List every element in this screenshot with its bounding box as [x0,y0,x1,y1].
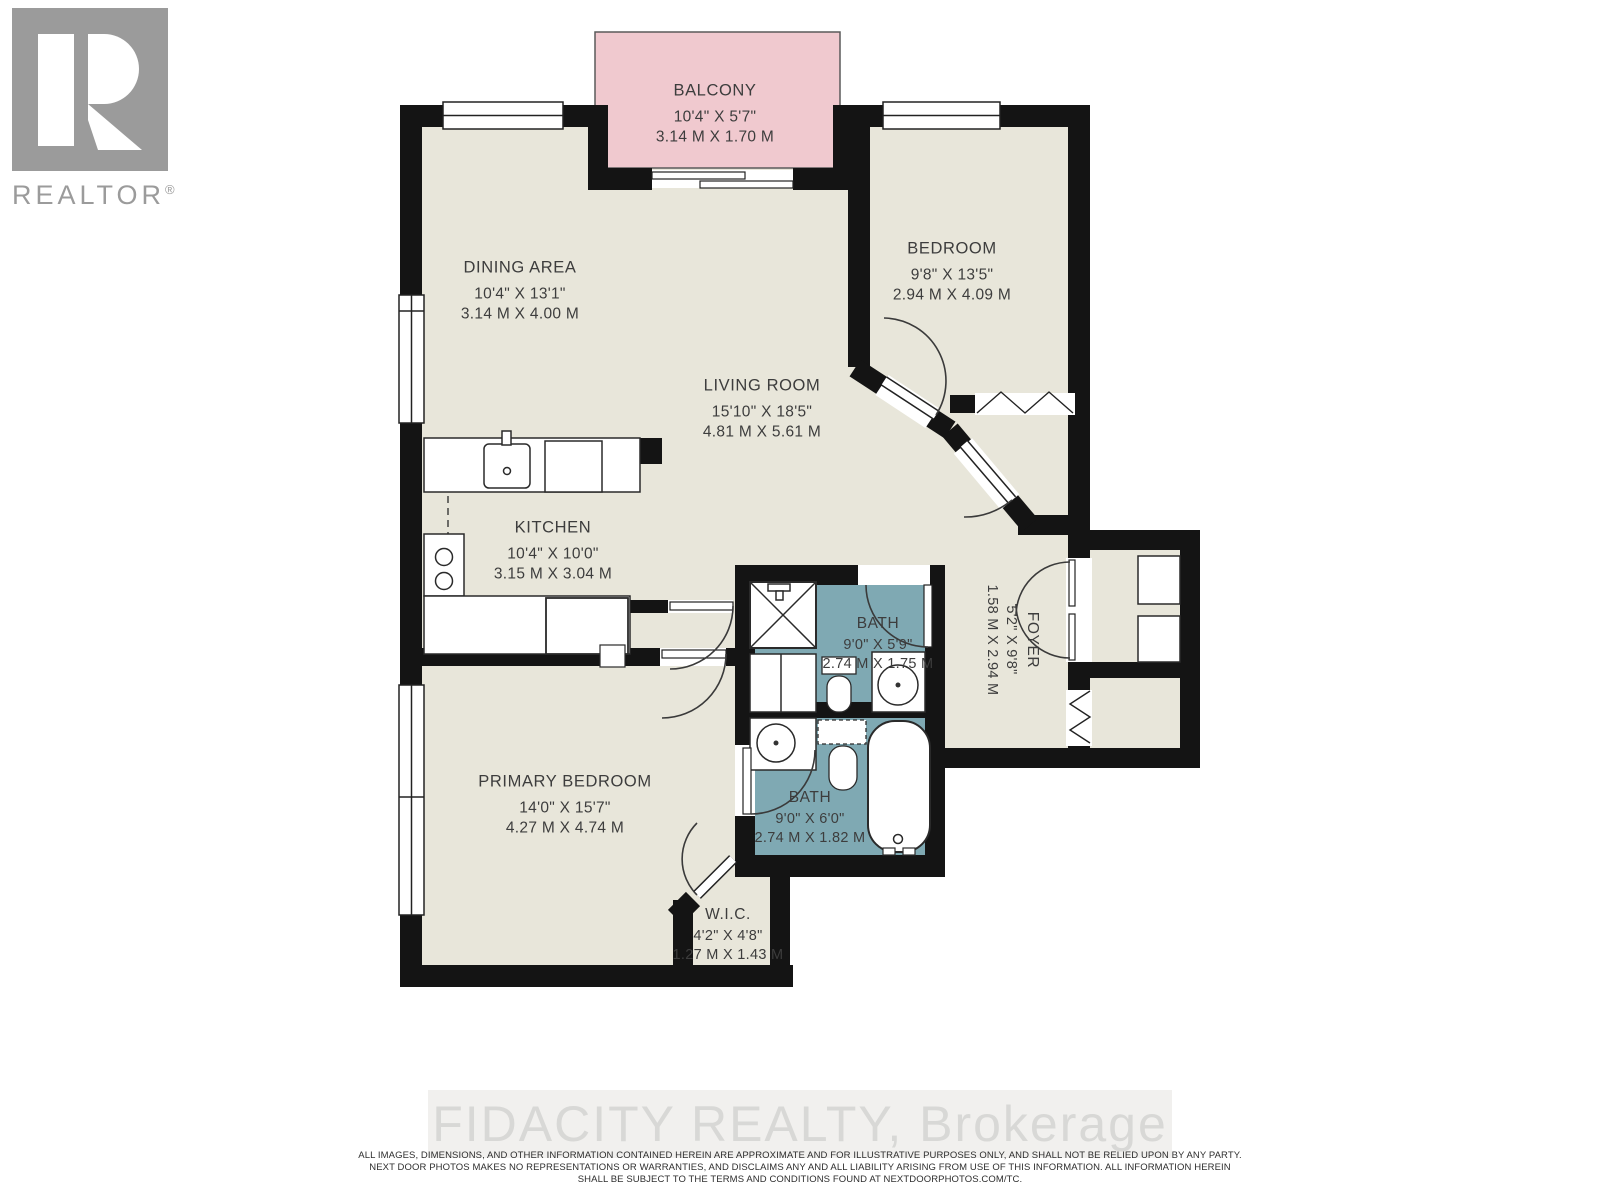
disclaimer-line-1: ALL IMAGES, DIMENSIONS, AND OTHER INFORM… [0,1150,1600,1162]
vanity-icon [750,654,816,712]
realtor-wordmark: REALTOR® [12,180,175,211]
shower-icon [750,582,816,648]
room-label-bedroom: BEDROOM 9'8" X 13'5" 2.94 M X 4.09 M [893,240,1011,307]
room-label-living: LIVING ROOM 15'10" X 18'5" 4.81 M X 5.61… [703,377,821,444]
window-icon-primary-left [399,685,424,915]
room-label-primary-bedroom: PRIMARY BEDROOM 14'0" X 15'7" 4.27 M X 4… [478,773,651,840]
disclaimer-line-3: SHALL BE SUBJECT TO THE TERMS AND CONDIT… [0,1174,1600,1186]
burner-icon [436,549,453,566]
counter-stub [600,645,625,667]
kitchen-sink-icon [484,444,530,488]
sink-icon [750,718,816,770]
cooktop-icon [545,441,602,492]
room-label-bath-ensuite: BATH 9'0" X 6'0" 2.74 M X 1.82 M [755,789,866,847]
shelf-icon [1138,616,1180,662]
closet-bifold-opening [975,393,1075,415]
realtor-logo-icon [12,8,212,178]
burner-icon [436,573,453,590]
disclaimer-line-2: NEXT DOOR PHOTOS MAKES NO REPRESENTATION… [0,1162,1600,1174]
window-icon-dining-top [443,102,563,129]
kitchen-counter-top [424,438,640,492]
brokerage-watermark: FIDACITY REALTY, Brokerage [428,1090,1172,1158]
bathtub-icon [868,721,930,855]
room-label-wic: W.I.C. 4'2" X 4'8" 1.27 M X 1.43 M [673,906,784,964]
room-label-kitchen: KITCHEN 10'4" X 10'0" 3.15 M X 3.04 M [494,519,612,586]
window-icon-dining-left [399,295,424,423]
room-label-foyer: FOYER 5'2" X 9'8" 1.58 M X 2.94 M [983,585,1041,696]
window-icon-bedroom-top [883,102,1000,129]
room-label-bath-main: BATH 9'0" X 5'9" 2.74 M X 1.75 M [823,615,934,673]
sliding-balcony-door [652,170,793,188]
bath-main-door-opening [858,565,930,585]
kitchen-faucet-icon [502,431,511,445]
floorplan-canvas [0,0,1600,1200]
disclaimer-text: ALL IMAGES, DIMENSIONS, AND OTHER INFORM… [0,1150,1600,1186]
shelf-icon [1138,556,1180,604]
room-label-balcony: BALCONY 10'4" X 5'7" 3.14 M X 1.70 M [656,82,774,149]
room-label-dining: DINING AREA 10'4" X 13'1" 3.14 M X 4.00 … [461,259,579,326]
